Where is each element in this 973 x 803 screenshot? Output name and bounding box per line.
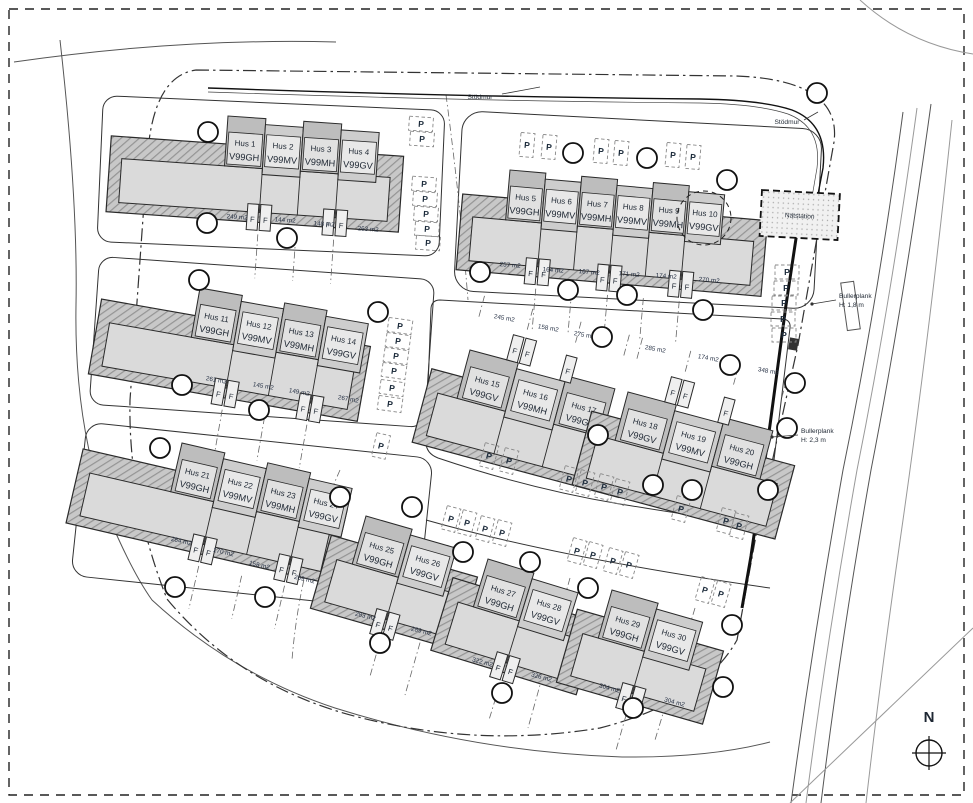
- tree: [402, 497, 422, 517]
- tree: [717, 170, 737, 190]
- tree: [588, 425, 608, 445]
- parking-stall-label: P: [618, 148, 625, 158]
- parking-stall-label: P: [598, 146, 605, 156]
- unit-name: Hus 7: [587, 199, 609, 210]
- unit-name: Hus 5: [515, 193, 537, 204]
- leader-dot: [810, 302, 813, 305]
- parking-stall-label: P: [422, 194, 429, 204]
- tree: [720, 355, 740, 375]
- parking-stall-label: P: [423, 209, 430, 219]
- unit-model: V99GH: [229, 151, 260, 163]
- tree: [453, 542, 473, 562]
- tree: [785, 373, 805, 393]
- tree: [255, 587, 275, 607]
- parking-stall-label: P: [418, 119, 425, 129]
- tree: [370, 633, 390, 653]
- site-plan: Hus 1 V99GH Hus 2 V99MV Hus 3 V99MH Hus …: [0, 0, 973, 803]
- area-label: 263 m2: [357, 225, 379, 233]
- unit-model: V99MH: [304, 156, 335, 168]
- parking-stall-label: P: [419, 134, 426, 144]
- tree: [713, 677, 733, 697]
- tree: [637, 148, 657, 168]
- parking-stall-label: P: [670, 150, 677, 160]
- unit-name: Hus 6: [551, 196, 573, 207]
- tree: [592, 327, 612, 347]
- tree: [807, 83, 827, 103]
- parking-stall-label: P: [784, 267, 790, 277]
- tree: [520, 552, 540, 572]
- site-plan-svg: Hus 1 V99GH Hus 2 V99MV Hus 3 V99MH Hus …: [0, 0, 973, 803]
- unit-name: Hus 3: [310, 144, 332, 154]
- unit-name: Hus 2: [272, 141, 294, 151]
- bullerplank-label-1: Bullerplank: [839, 293, 872, 300]
- parking-stall-label: P: [783, 283, 789, 293]
- parking-stall-label: P: [524, 140, 531, 150]
- leader-dot: [770, 435, 773, 438]
- parking-stall-label: P: [781, 330, 787, 340]
- tree: [165, 577, 185, 597]
- tree: [197, 213, 217, 233]
- tree: [249, 400, 269, 420]
- parking-stall-label: P: [780, 314, 786, 324]
- tree: [470, 262, 490, 282]
- parking-stall-label: P: [781, 298, 787, 308]
- parking-stall-label: P: [690, 152, 697, 162]
- unit-name: Hus 8: [622, 202, 644, 213]
- area-label: 249 m2: [226, 213, 248, 221]
- natstation-box: Nätstation: [760, 190, 840, 240]
- tree: [558, 280, 578, 300]
- tree: [277, 228, 297, 248]
- parking-stall-label: P: [425, 238, 432, 248]
- tree: [330, 487, 350, 507]
- parking-stall-label: P: [546, 142, 553, 152]
- tree: [198, 122, 218, 142]
- tree: [623, 698, 643, 718]
- unit-name: Hus 4: [348, 146, 370, 156]
- tree: [189, 270, 209, 290]
- parking-stall-label: P: [421, 179, 428, 189]
- north-label: N: [924, 709, 935, 726]
- stodmur-label-1: Stödmur: [468, 94, 494, 101]
- tree: [682, 480, 702, 500]
- tree: [150, 438, 170, 458]
- tree: [492, 683, 512, 703]
- tree: [172, 375, 192, 395]
- bullerplank-height-2: H: 2,3 m: [801, 437, 826, 444]
- tree: [722, 615, 742, 635]
- unit-name: Hus 1: [234, 139, 256, 149]
- tree: [643, 475, 663, 495]
- stodmur-label-2: Stödmur: [775, 119, 801, 126]
- bullerplank-label-2: Bullerplank: [801, 428, 834, 435]
- unit-name: Hus 9: [658, 205, 680, 216]
- tree: [758, 480, 778, 500]
- tree: [578, 578, 598, 598]
- area-label: 144 m2: [274, 216, 296, 224]
- bullerplank-height-1: H: 1,8 m: [839, 302, 864, 309]
- tree: [693, 300, 713, 320]
- area-label: 148 m2: [313, 220, 335, 228]
- tree: [368, 302, 388, 322]
- tree: [563, 143, 583, 163]
- unit-model: V99GV: [343, 159, 374, 171]
- parking-stall-label: P: [424, 224, 431, 234]
- tree: [617, 285, 637, 305]
